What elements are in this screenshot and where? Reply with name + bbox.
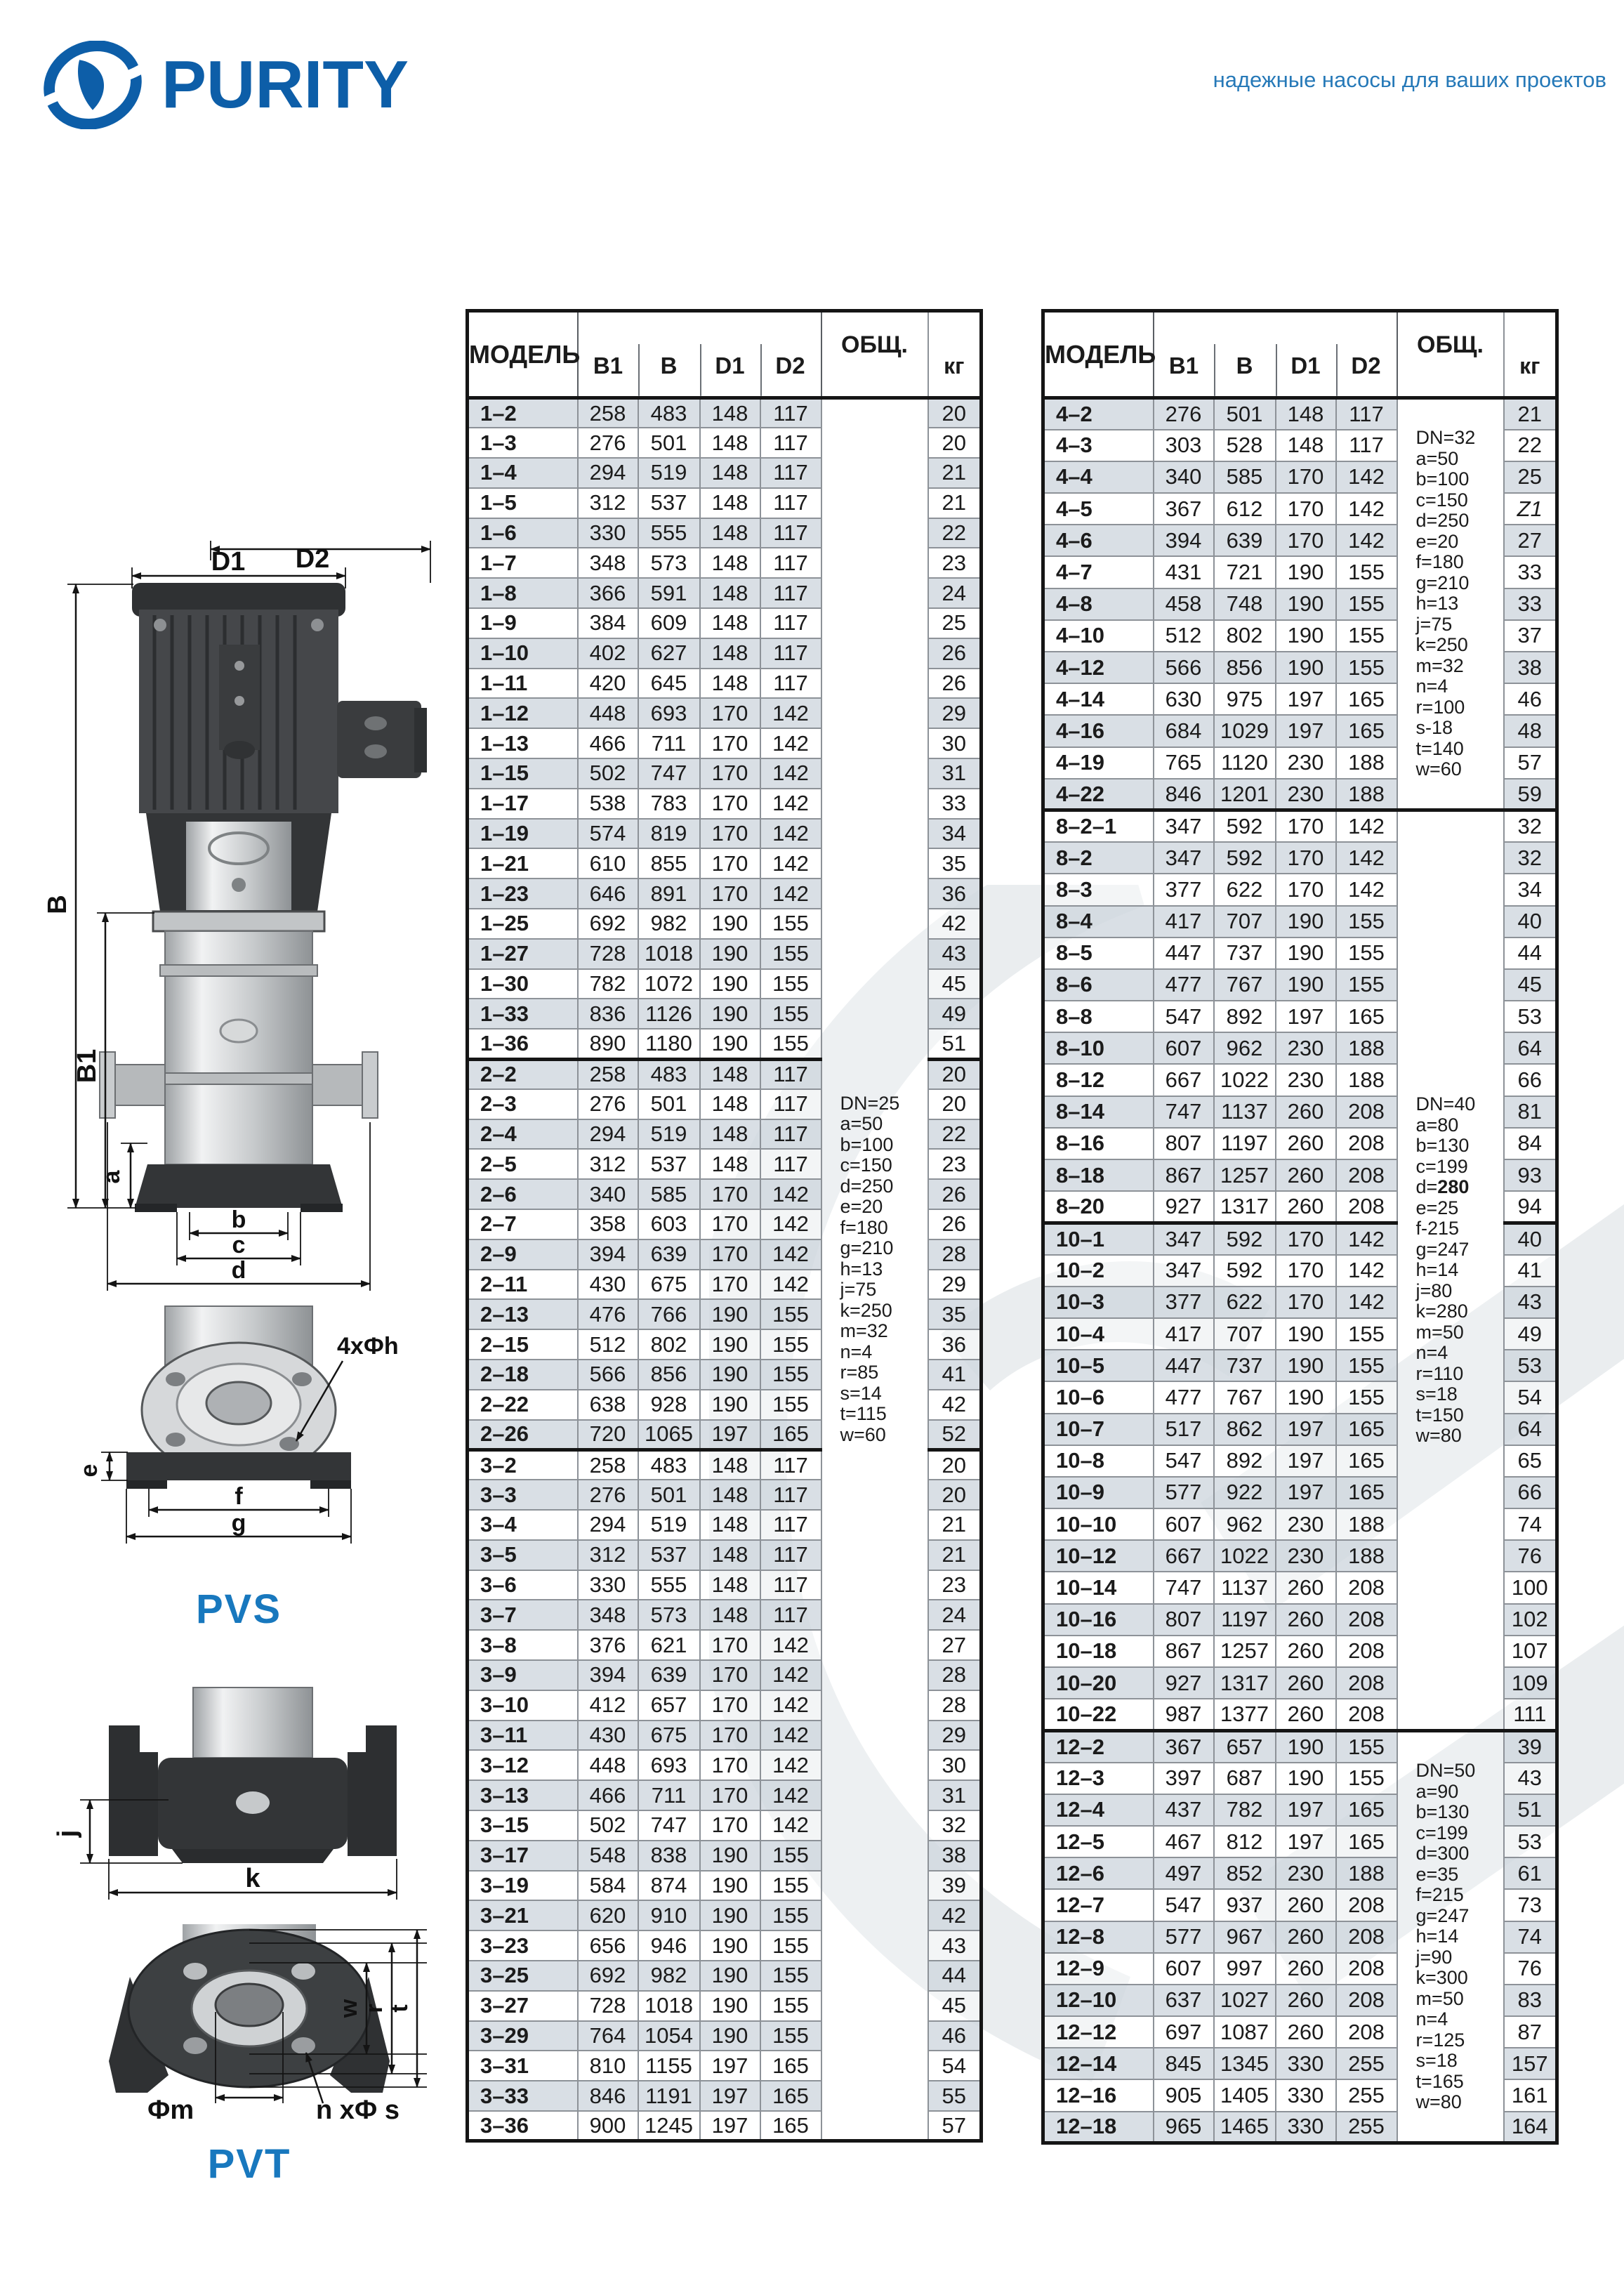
model-cell: 1–13 — [468, 728, 578, 758]
b-cell: 555 — [638, 518, 700, 548]
kg-cell: 164 — [1504, 2112, 1557, 2143]
d2-cell: 142 — [1336, 842, 1397, 874]
kg-cell: 21 — [1504, 398, 1557, 430]
d1-cell: 260 — [1276, 1128, 1336, 1159]
b-cell: 1027 — [1214, 1985, 1276, 2016]
model-cell: 8–18 — [1043, 1159, 1154, 1191]
b-cell: 962 — [1214, 1508, 1276, 1540]
b-cell: 711 — [638, 728, 700, 758]
b1-cell: 276 — [578, 428, 638, 458]
d2-cell: 117 — [760, 1570, 821, 1600]
b1-cell: 358 — [578, 1209, 638, 1239]
b-cell: 892 — [1214, 1445, 1276, 1477]
b-cell: 737 — [1214, 1350, 1276, 1381]
d1-cell: 148 — [700, 1480, 760, 1510]
column-header-kg: кг — [1504, 311, 1557, 398]
b-cell: 687 — [1214, 1763, 1276, 1794]
b1-cell: 512 — [1154, 620, 1214, 652]
b-cell: 862 — [1214, 1414, 1276, 1445]
dimensions-table-right: МОДЕЛЬ B1 B D1 D2 ОБЩ. кг 4–227650114811… — [1041, 309, 1559, 2145]
model-cell: 1–23 — [468, 879, 578, 909]
d1-cell: 190 — [1276, 1730, 1336, 1762]
kg-cell: 26 — [928, 1209, 982, 1239]
d1-cell: 260 — [1276, 1159, 1336, 1191]
b-cell: 1180 — [638, 1029, 700, 1059]
kg-cell: 33 — [1504, 556, 1557, 588]
kg-cell: 28 — [928, 1660, 982, 1690]
table-header-row: МОДЕЛЬ B1 B D1 D2 ОБЩ. кг — [1043, 311, 1557, 398]
b1-cell: 294 — [578, 1119, 638, 1150]
d2-cell: 142 — [760, 789, 821, 819]
d1-cell: 148 — [700, 608, 760, 638]
header-logo: PURITY — [34, 41, 409, 129]
kg-cell: 83 — [1504, 1985, 1557, 2016]
d2-cell: 208 — [1336, 2016, 1397, 2048]
column-header-d2: D2 — [1336, 311, 1397, 398]
dim-label-width-c: c — [232, 1232, 246, 1258]
b1-cell: 846 — [578, 2081, 638, 2111]
d2-cell: 188 — [1336, 779, 1397, 810]
model-cell: 2–2 — [468, 1059, 578, 1089]
b1-cell: 577 — [1154, 1921, 1214, 1953]
b1-cell: 584 — [578, 1871, 638, 1901]
d2-cell: 155 — [760, 1871, 821, 1901]
d1-cell: 190 — [700, 1900, 760, 1930]
model-cell: 1–8 — [468, 578, 578, 608]
d1-cell: 170 — [700, 728, 760, 758]
b-cell: 812 — [1214, 1826, 1276, 1857]
column-header-total: ОБЩ. — [1397, 311, 1504, 398]
d2-cell: 117 — [1336, 398, 1397, 430]
d2-cell: 165 — [1336, 1794, 1397, 1826]
d2-cell: 165 — [1336, 1414, 1397, 1445]
d1-cell: 260 — [1276, 1985, 1336, 2016]
d1-cell: 190 — [1276, 1350, 1336, 1381]
dim-label-b1: B1 — [72, 1049, 102, 1084]
b1-cell: 276 — [578, 1480, 638, 1510]
b-cell: 1197 — [1214, 1128, 1276, 1159]
model-cell: 10–18 — [1043, 1636, 1154, 1667]
model-cell: 3–15 — [468, 1810, 578, 1841]
d1-cell: 260 — [1276, 2016, 1336, 2048]
d2-cell: 142 — [760, 728, 821, 758]
d2-cell: 117 — [760, 398, 821, 428]
column-header-b: B — [1214, 311, 1276, 398]
model-cell: 12–9 — [1043, 1953, 1154, 1985]
b1-cell: 347 — [1154, 1255, 1214, 1287]
model-cell: 10–16 — [1043, 1604, 1154, 1636]
model-cell: 12–5 — [1043, 1826, 1154, 1857]
d1-cell: 170 — [1276, 1255, 1336, 1287]
b-cell: 1257 — [1214, 1159, 1276, 1191]
b-cell: 592 — [1214, 1255, 1276, 1287]
model-cell: 12–3 — [1043, 1763, 1154, 1794]
model-cell: 8–4 — [1043, 906, 1154, 938]
b-cell: 1465 — [1214, 2112, 1276, 2143]
model-cell: 8–2 — [1043, 842, 1154, 874]
kg-cell: 94 — [1504, 1191, 1557, 1223]
b-cell: 603 — [638, 1209, 700, 1239]
pvt-pump-diagram: j k w r t Фm n xФ s — [42, 1682, 449, 2131]
d1-cell: 170 — [700, 1780, 760, 1810]
d1-cell: 190 — [700, 1871, 760, 1901]
b1-cell: 303 — [1154, 430, 1214, 461]
model-cell: 12–4 — [1043, 1794, 1154, 1826]
b-cell: 982 — [638, 1961, 700, 1991]
purity-logo-icon — [34, 41, 152, 129]
b1-cell: 258 — [578, 1059, 638, 1089]
d1-cell: 230 — [1276, 1508, 1336, 1540]
b-cell: 711 — [638, 1780, 700, 1810]
kg-cell: 25 — [928, 608, 982, 638]
d1-cell: 170 — [1276, 842, 1336, 874]
kg-cell: 38 — [1504, 652, 1557, 683]
d1-cell: 148 — [700, 1540, 760, 1570]
d2-cell: 142 — [760, 1750, 821, 1780]
model-cell: 3–10 — [468, 1690, 578, 1721]
d1-cell: 190 — [700, 1329, 760, 1360]
b-cell: 693 — [638, 1750, 700, 1780]
pvs-pump-diagram: D2 D1 — [42, 539, 449, 1558]
b1-cell: 728 — [578, 939, 638, 969]
column-header-d1: D1 — [700, 311, 760, 398]
d1-cell: 148 — [700, 1510, 760, 1540]
b1-cell: 448 — [578, 698, 638, 728]
d1-cell: 170 — [700, 1270, 760, 1300]
model-cell: 12–8 — [1043, 1921, 1154, 1953]
d2-cell: 155 — [1336, 1381, 1397, 1413]
d2-cell: 208 — [1336, 1128, 1397, 1159]
b-cell: 855 — [638, 848, 700, 879]
b1-cell: 548 — [578, 1841, 638, 1871]
kg-cell: 29 — [928, 1721, 982, 1751]
b-cell: 782 — [1214, 1794, 1276, 1826]
kg-cell: 57 — [1504, 747, 1557, 779]
b-cell: 856 — [638, 1360, 700, 1390]
model-cell: 8–16 — [1043, 1128, 1154, 1159]
model-cell: 10–1 — [1043, 1223, 1154, 1254]
b1-cell: 630 — [1154, 683, 1214, 715]
d2-cell: 155 — [760, 1961, 821, 1991]
b1-cell: 458 — [1154, 588, 1214, 620]
kg-cell: 54 — [1504, 1381, 1557, 1413]
d1-cell: 197 — [1276, 683, 1336, 715]
model-cell: 3–13 — [468, 1780, 578, 1810]
model-cell: 4–2 — [1043, 398, 1154, 430]
kg-cell: 107 — [1504, 1636, 1557, 1667]
b1-cell: 340 — [1154, 461, 1214, 493]
b1-cell: 810 — [578, 2051, 638, 2081]
b-cell: 1197 — [1214, 1604, 1276, 1636]
b1-cell: 692 — [578, 1961, 638, 1991]
model-cell: 3–19 — [468, 1871, 578, 1901]
d1-cell: 190 — [1276, 938, 1336, 969]
b1-cell: 276 — [1154, 398, 1214, 430]
d1-cell: 190 — [700, 1961, 760, 1991]
dim-label-j: j — [53, 1830, 82, 1838]
b-cell: 1137 — [1214, 1096, 1276, 1128]
d1-cell: 148 — [700, 458, 760, 488]
d2-cell: 155 — [760, 1900, 821, 1930]
b-cell: 922 — [1214, 1477, 1276, 1508]
d1-cell: 190 — [700, 2021, 760, 2051]
b1-cell: 437 — [1154, 1794, 1214, 1826]
b-cell: 675 — [638, 1270, 700, 1300]
model-cell: 1–12 — [468, 698, 578, 728]
d2-cell: 165 — [1336, 1445, 1397, 1477]
b1-cell: 890 — [578, 1029, 638, 1059]
d1-cell: 230 — [1276, 747, 1336, 779]
d2-cell: 155 — [760, 1029, 821, 1059]
b1-cell: 547 — [1154, 1889, 1214, 1921]
model-cell: 3–2 — [468, 1449, 578, 1480]
d1-cell: 170 — [700, 879, 760, 909]
b-cell: 591 — [638, 578, 700, 608]
b1-cell: 807 — [1154, 1604, 1214, 1636]
model-cell: 12–12 — [1043, 2016, 1154, 2048]
kg-cell: 54 — [928, 2051, 982, 2081]
kg-cell: 28 — [928, 1239, 982, 1270]
b1-cell: 430 — [578, 1721, 638, 1751]
b-cell: 645 — [638, 669, 700, 699]
d1-cell: 148 — [700, 488, 760, 518]
model-cell: 4–14 — [1043, 683, 1154, 715]
kg-cell: 46 — [1504, 683, 1557, 715]
b1-cell: 330 — [578, 1570, 638, 1600]
b1-cell: 692 — [578, 909, 638, 939]
kg-cell: 34 — [928, 819, 982, 849]
b1-cell: 476 — [578, 1299, 638, 1329]
d2-cell: 155 — [1336, 906, 1397, 938]
table-body-right: 4–2276501148117DN=32a=50b=100c=150d=250e… — [1043, 398, 1557, 2143]
d2-cell: 117 — [760, 428, 821, 458]
kg-cell: 24 — [928, 1600, 982, 1630]
d2-cell: 188 — [1336, 1032, 1397, 1064]
b-cell: 766 — [638, 1299, 700, 1329]
b1-cell: 502 — [578, 758, 638, 789]
kg-cell: 45 — [928, 1991, 982, 2021]
model-cell: 8–5 — [1043, 938, 1154, 969]
model-cell: 4–22 — [1043, 779, 1154, 810]
d1-cell: 230 — [1276, 1540, 1336, 1572]
d2-cell: 155 — [1336, 969, 1397, 1001]
model-cell: 1–36 — [468, 1029, 578, 1059]
dim-label-g: g — [232, 1510, 246, 1537]
b-cell: 555 — [638, 1570, 700, 1600]
model-cell: 4–12 — [1043, 652, 1154, 683]
column-header-b1: B1 — [578, 311, 638, 398]
d1-cell: 170 — [700, 698, 760, 728]
model-cell: 10–10 — [1043, 1508, 1154, 1540]
b1-cell: 348 — [578, 1600, 638, 1630]
model-cell: 10–5 — [1043, 1350, 1154, 1381]
d2-cell: 155 — [760, 999, 821, 1029]
model-cell: 3–4 — [468, 1510, 578, 1540]
b1-cell: 547 — [1154, 1445, 1214, 1477]
d1-cell: 170 — [1276, 1287, 1336, 1318]
kg-cell: 42 — [928, 1390, 982, 1420]
kg-cell: 22 — [928, 518, 982, 548]
kg-cell: 20 — [928, 428, 982, 458]
d1-cell: 190 — [700, 1299, 760, 1329]
model-cell: 10–2 — [1043, 1255, 1154, 1287]
kg-cell: 31 — [928, 758, 982, 789]
kg-cell: 51 — [928, 1029, 982, 1059]
kg-cell: 30 — [928, 1750, 982, 1780]
dim-label-f: f — [235, 1483, 243, 1510]
b-cell: 1018 — [638, 939, 700, 969]
kg-cell: 74 — [1504, 1508, 1557, 1540]
d2-cell: 117 — [760, 488, 821, 518]
d1-cell: 197 — [700, 2081, 760, 2111]
model-cell: 1–21 — [468, 848, 578, 879]
b-cell: 519 — [638, 458, 700, 488]
kg-cell: 25 — [1504, 461, 1557, 493]
b1-cell: 417 — [1154, 906, 1214, 938]
d2-cell: 165 — [1336, 1826, 1397, 1857]
b-cell: 573 — [638, 1600, 700, 1630]
kg-cell: Z1 — [1504, 493, 1557, 525]
d2-cell: 142 — [1336, 1223, 1397, 1254]
b-cell: 501 — [638, 1089, 700, 1119]
d1-cell: 170 — [700, 848, 760, 879]
b1-cell: 638 — [578, 1390, 638, 1420]
d2-cell: 155 — [1336, 938, 1397, 969]
table-row: 12–2367657190155DN=50a=90b=130c=199d=300… — [1043, 1730, 1557, 1762]
dim-label-width-b: b — [232, 1206, 246, 1233]
kg-cell: 36 — [928, 1329, 982, 1360]
kg-cell: 38 — [928, 1841, 982, 1871]
kg-cell: 53 — [1504, 1350, 1557, 1381]
model-cell: 1–4 — [468, 458, 578, 488]
kg-cell: 20 — [928, 1449, 982, 1480]
b1-cell: 376 — [578, 1630, 638, 1660]
b1-cell: 448 — [578, 1750, 638, 1780]
d1-cell: 170 — [700, 789, 760, 819]
kg-cell: 43 — [928, 939, 982, 969]
b1-cell: 367 — [1154, 493, 1214, 525]
kg-cell: 29 — [928, 698, 982, 728]
model-cell: 4–19 — [1043, 747, 1154, 779]
model-cell: 12–6 — [1043, 1857, 1154, 1889]
d1-cell: 148 — [700, 1059, 760, 1089]
dim-label-bolt-holes: n xФ s — [316, 2096, 400, 2125]
kg-cell: 73 — [1504, 1889, 1557, 1921]
dim-label-d2: D2 — [296, 544, 330, 574]
kg-cell: 27 — [928, 1630, 982, 1660]
d1-cell: 148 — [700, 578, 760, 608]
d2-cell: 142 — [760, 1209, 821, 1239]
b1-cell: 538 — [578, 789, 638, 819]
kg-cell: 76 — [1504, 1540, 1557, 1572]
b1-cell: 566 — [1154, 652, 1214, 683]
d1-cell: 260 — [1276, 1572, 1336, 1603]
dimensions-note-cell: DN=40a=80b=130c=199d=280e=25f-215g=247h=… — [1397, 810, 1504, 1730]
column-header-model: МОДЕЛЬ — [468, 311, 578, 398]
d1-cell: 170 — [700, 1630, 760, 1660]
d2-cell: 142 — [760, 1780, 821, 1810]
model-cell: 1–19 — [468, 819, 578, 849]
d1-cell: 170 — [1276, 1223, 1336, 1254]
d1-cell: 148 — [700, 638, 760, 669]
b1-cell: 867 — [1154, 1636, 1214, 1667]
d2-cell: 142 — [1336, 461, 1397, 493]
b-cell: 707 — [1214, 1318, 1276, 1350]
b1-cell: 294 — [578, 1510, 638, 1540]
b-cell: 819 — [638, 819, 700, 849]
kg-cell: 22 — [1504, 430, 1557, 461]
b-cell: 609 — [638, 608, 700, 638]
model-cell: 3–29 — [468, 2021, 578, 2051]
b1-cell: 807 — [1154, 1128, 1214, 1159]
b-cell: 519 — [638, 1119, 700, 1150]
b-cell: 585 — [638, 1179, 700, 1209]
model-cell: 3–25 — [468, 1961, 578, 1991]
d2-cell: 155 — [1336, 620, 1397, 652]
d1-cell: 170 — [1276, 461, 1336, 493]
b-cell: 1029 — [1214, 715, 1276, 746]
kg-cell: 157 — [1504, 2048, 1557, 2079]
b1-cell: 566 — [578, 1360, 638, 1390]
d2-cell: 117 — [1336, 430, 1397, 461]
model-cell: 10–20 — [1043, 1667, 1154, 1699]
d1-cell: 260 — [1276, 1096, 1336, 1128]
b-cell: 802 — [638, 1329, 700, 1360]
d2-cell: 142 — [760, 1721, 821, 1751]
model-cell: 1–5 — [468, 488, 578, 518]
d1-cell: 170 — [700, 819, 760, 849]
d1-cell: 197 — [1276, 1794, 1336, 1826]
d1-cell: 170 — [700, 1239, 760, 1270]
kg-cell: 61 — [1504, 1857, 1557, 1889]
d1-cell: 230 — [1276, 1032, 1336, 1064]
b-cell: 1065 — [638, 1420, 700, 1450]
kg-cell: 48 — [1504, 715, 1557, 746]
b1-cell: 276 — [578, 1089, 638, 1119]
model-cell: 12–16 — [1043, 2079, 1154, 2111]
b1-cell: 294 — [578, 458, 638, 488]
b-cell: 592 — [1214, 842, 1276, 874]
d2-cell: 155 — [760, 939, 821, 969]
b-cell: 852 — [1214, 1857, 1276, 1889]
b1-cell: 607 — [1154, 1508, 1214, 1540]
d1-cell: 197 — [1276, 1001, 1336, 1032]
d1-cell: 197 — [700, 2051, 760, 2081]
b-cell: 937 — [1214, 1889, 1276, 1921]
d2-cell: 142 — [760, 698, 821, 728]
b-cell: 1317 — [1214, 1667, 1276, 1699]
d1-cell: 148 — [1276, 398, 1336, 430]
b1-cell: 330 — [578, 518, 638, 548]
b-cell: 1120 — [1214, 747, 1276, 779]
b-cell: 592 — [1214, 1223, 1276, 1254]
b-cell: 537 — [638, 1540, 700, 1570]
table-header-row: МОДЕЛЬ B1 B D1 D2 ОБЩ. кг — [468, 311, 982, 398]
d2-cell: 255 — [1336, 2048, 1397, 2079]
d2-cell: 117 — [760, 548, 821, 578]
d2-cell: 117 — [760, 1449, 821, 1480]
model-cell: 12–14 — [1043, 2048, 1154, 2079]
b1-cell: 412 — [578, 1690, 638, 1721]
d1-cell: 170 — [700, 1750, 760, 1780]
model-cell: 10–3 — [1043, 1287, 1154, 1318]
kg-cell: 36 — [928, 879, 982, 909]
b-cell: 519 — [638, 1510, 700, 1540]
model-cell: 3–27 — [468, 1991, 578, 2021]
model-cell: 1–10 — [468, 638, 578, 669]
model-cell: 3–21 — [468, 1900, 578, 1930]
d1-cell: 148 — [700, 548, 760, 578]
